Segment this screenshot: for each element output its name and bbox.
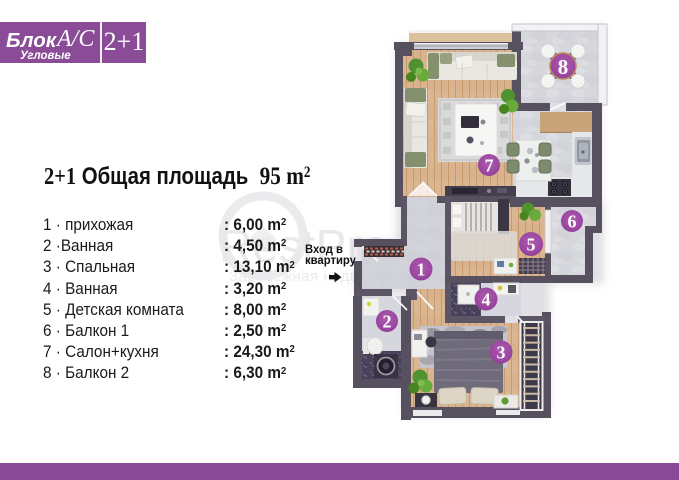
svg-text:3: 3	[497, 343, 506, 363]
svg-text:7: 7	[485, 156, 494, 176]
svg-text:6: 6	[568, 212, 577, 232]
svg-text:1: 1	[417, 260, 426, 280]
svg-text:4: 4	[482, 290, 491, 310]
svg-text:5: 5	[527, 235, 536, 255]
svg-text:2: 2	[383, 312, 392, 332]
svg-text:8: 8	[558, 55, 569, 79]
